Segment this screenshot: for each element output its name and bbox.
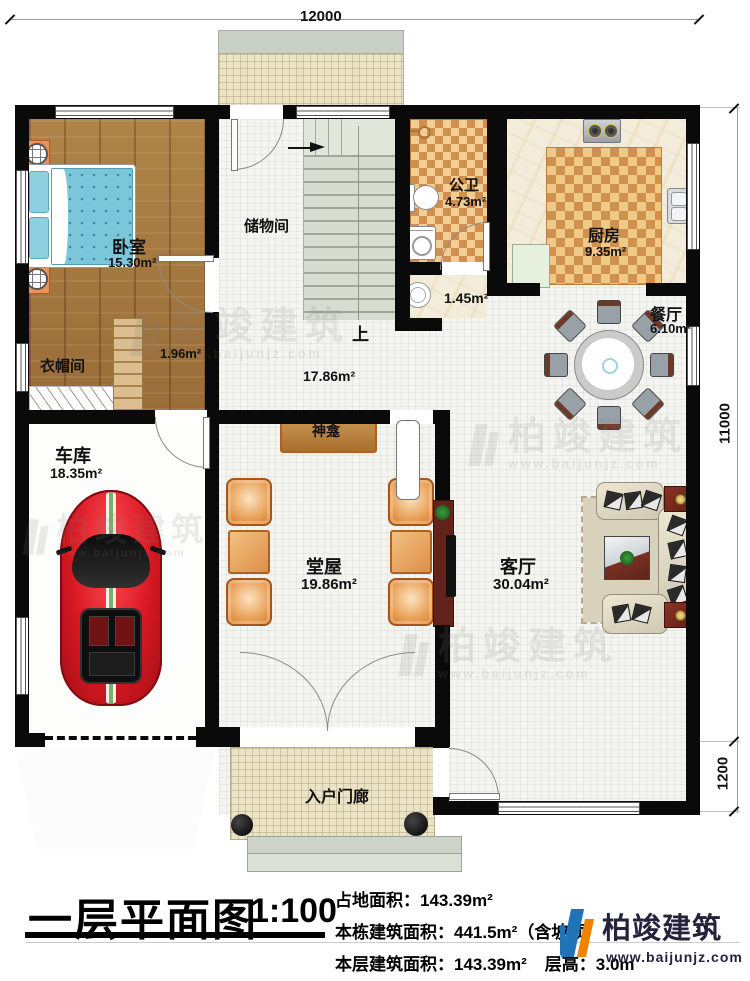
sofa-pillow [641,490,662,511]
wall-garage-corner [15,733,45,747]
floor-plan-scale: 1:100 [250,892,337,931]
opening-living-porch-door [433,748,449,797]
dimension-right-upper-label: 11000 [717,394,734,454]
hall-chair [388,578,434,626]
toilet-icon [413,185,439,210]
bedroom-door-leaf [158,255,214,262]
hallway-area: 17.86m² [303,368,355,384]
garage-area: 18.35m² [50,465,102,481]
wall-hall-west [205,424,219,727]
back-door-leaf [231,119,238,171]
wall-bath-kitchen [487,105,507,296]
wall-garage-south-stub [196,727,210,747]
bedroom-area: 15.30m² [108,255,156,270]
porch-column [231,814,253,836]
kitchen-name: 厨房 [588,222,620,246]
dining-chair [597,406,621,430]
car-engine-cover [80,608,142,684]
tangwu-area: 19.86m² [301,576,357,593]
brand-url: www.baijunjz.com [606,949,743,965]
back-porch-step [218,30,404,55]
stairs-up-label: 上 [352,320,369,345]
window-stairs-north [296,106,390,118]
opening-back-door [230,105,283,119]
car [60,490,162,706]
window-living-south [498,802,640,814]
sofa-pillow [603,490,623,510]
floor-plan-canvas: 12000 11000 1200 [0,0,750,981]
stair-direction-line [288,147,312,149]
dining-chair [544,353,568,377]
bath-name: 公卫 [449,174,479,195]
back-porch-floor [218,53,404,107]
burner [588,124,602,138]
hall-tea-table [228,530,270,574]
hall-chair [226,578,272,626]
window-kitchen-east [687,143,699,250]
washer-door [412,236,432,256]
washer-panel [407,230,433,231]
logo-blue-block [560,925,565,955]
bath-area: 4.73m² [445,194,486,209]
sofa-pillow [667,539,687,559]
wall-kitchen-south-right [646,283,686,296]
building-area-prefix: 本栋建筑面积：441.5m²（含坡顶 [335,923,585,942]
stair-divider [358,126,359,320]
hall-north-door-leaf [396,420,420,500]
brand-logo: 柏竣建筑 www.baijunjz.com [560,903,750,973]
shrine-label: 神龛 [312,421,340,441]
bath-door-leaf [483,222,490,271]
car-windshield [72,534,150,588]
living-area: 30.04m² [493,576,549,593]
floor-plan-title: 一层平面图 [28,884,258,948]
dimension-top-label: 12000 [300,8,342,25]
dining-chair [597,300,621,324]
sheet-fold [52,169,68,264]
window-cloakroom-west [16,343,28,392]
garage-door-dashed [45,736,196,740]
hall-tea-table [390,530,432,574]
wall-stairs-bath [395,105,410,331]
dining-chair [650,353,674,377]
porch-column [404,812,428,836]
garage-door-leaf [203,417,210,469]
cloakroom-area: 1.96m² [160,346,201,361]
dimension-right-lower-label: 1200 [715,744,732,804]
kitchen-mat [546,147,662,285]
floor-area-text: 本层建筑面积：143.39m² [335,955,527,974]
cloakroom-wardrobe [113,318,143,412]
wall-bath-south [410,262,442,275]
wash-area: 1.45m² [444,290,488,306]
brand-logo-icon [560,907,596,963]
engine-detail [89,652,135,676]
window-bedroom-west [16,170,28,264]
stair-upper-tread [328,119,329,155]
wall-kitchen-south-left [507,283,540,296]
lamp-icon [26,268,48,290]
plant-icon [620,551,634,565]
burner [604,124,618,138]
title-underline-thick [25,932,325,938]
sofa-pillow [624,491,643,510]
wall-hall-east-upper [435,410,450,500]
basin-inner [410,287,426,303]
land-area-line: 占地面积：143.39m² [335,886,493,911]
stair-upper-tread [341,119,342,155]
porch-name: 入户门廊 [305,783,369,807]
driveway [12,747,218,849]
porch-step [247,853,462,872]
tv-icon [446,535,456,597]
towel-ring-icon [418,126,431,139]
pillow-blue [29,217,49,259]
engine-detail [89,616,109,646]
stove-icon [583,119,621,143]
wall-wash-south [395,318,442,331]
plant-icon [435,505,450,520]
sofa-single-top [596,482,664,520]
engine-detail [115,616,135,646]
window-bedroom-north [55,106,174,118]
brand-name: 柏竣建筑 [602,915,722,944]
kitchen-area: 9.35m² [585,244,626,259]
sink-basin [671,192,687,206]
stair-up-arrow-icon [310,142,325,152]
coffee-table [604,536,650,580]
wall-hall-east-lower [435,625,450,727]
dining-area: 6.10m² [650,321,691,336]
sofa-single-bottom [602,594,668,634]
stair-treads [303,155,396,320]
land-area-text: 占地面积：143.39m² [335,891,493,910]
lamp-icon [26,143,48,165]
table-center [602,358,618,374]
storage-name: 储物间 [244,215,289,236]
sofa-pillow [668,564,687,583]
living-porch-door-leaf [449,793,500,800]
cloakroom-name: 衣帽间 [40,355,85,376]
pillow-blue [29,171,49,213]
sink-basin [671,207,687,221]
dimension-line-top [10,19,700,20]
dining-table [574,330,644,400]
hall-chair [226,478,272,526]
dimension-line-right [737,107,738,813]
sofa-pillow [612,604,632,624]
window-garage-west [16,617,28,695]
kitchen-cabinet [512,244,550,288]
sofa-pillow [631,603,652,624]
